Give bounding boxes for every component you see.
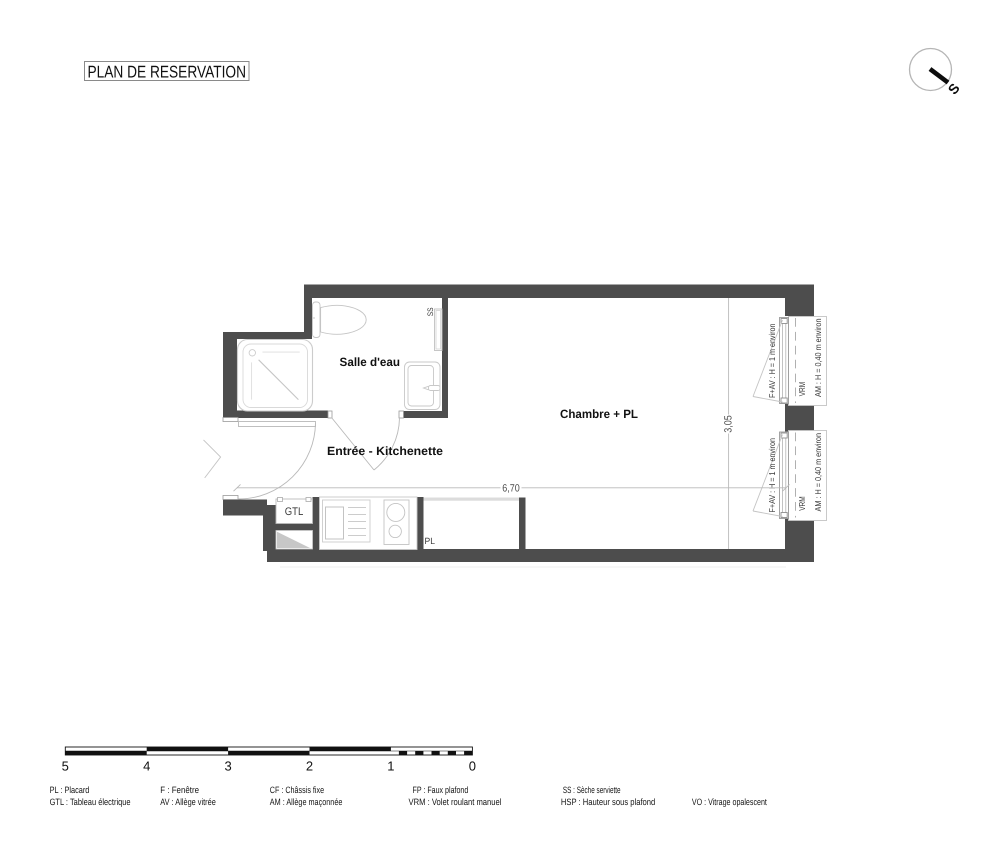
- svg-text:Chambre + PL: Chambre + PL: [560, 407, 638, 421]
- svg-text:VO : Vitrage opalescent: VO : Vitrage opalescent: [692, 797, 767, 807]
- svg-text:3: 3: [224, 759, 231, 774]
- svg-text:VRM : Volet roulant manuel: VRM : Volet roulant manuel: [409, 797, 502, 807]
- svg-text:4: 4: [143, 759, 150, 774]
- svg-text:2: 2: [306, 759, 313, 774]
- svg-text:AM : Allège maçonnée: AM : Allège maçonnée: [270, 797, 343, 807]
- svg-text:0: 0: [469, 759, 476, 774]
- svg-text:CF : Châssis fixe: CF : Châssis fixe: [270, 785, 324, 795]
- svg-text:6,70: 6,70: [502, 483, 520, 495]
- svg-text:GTL: GTL: [285, 506, 304, 518]
- svg-text:F : Fenêtre: F : Fenêtre: [160, 785, 199, 795]
- svg-text:Salle d'eau: Salle d'eau: [340, 355, 401, 369]
- svg-text:VRM: VRM: [797, 382, 807, 397]
- svg-text:3,05: 3,05: [723, 415, 735, 433]
- svg-text:1: 1: [387, 759, 394, 774]
- svg-text:GTL : Tableau électrique: GTL : Tableau électrique: [50, 797, 131, 807]
- svg-text:F+AV : H = 1 m environ: F+AV : H = 1 m environ: [767, 438, 777, 513]
- svg-text:AM : H = 0,40 m environ: AM : H = 0,40 m environ: [813, 318, 823, 397]
- svg-text:HSP : Hauteur sous plafond: HSP : Hauteur sous plafond: [561, 797, 655, 807]
- svg-text:SS: SS: [426, 308, 435, 317]
- svg-text:PL : Placard: PL : Placard: [50, 785, 90, 795]
- svg-text:5: 5: [62, 759, 69, 774]
- svg-text:Entrée - Kitchenette: Entrée - Kitchenette: [327, 444, 443, 458]
- svg-text:F+AV : H = 1 m environ: F+AV : H = 1 m environ: [767, 323, 777, 398]
- svg-text:AM : H = 0,40 m environ: AM : H = 0,40 m environ: [813, 433, 823, 512]
- svg-text:AV : Allège vitrée: AV : Allège vitrée: [160, 797, 216, 807]
- svg-text:VRM: VRM: [797, 496, 807, 511]
- svg-text:FP : Faux plafond: FP : Faux plafond: [413, 785, 469, 795]
- svg-text:PLAN DE RESERVATION: PLAN DE RESERVATION: [88, 62, 247, 81]
- svg-text:SS : Sèche serviette: SS : Sèche serviette: [563, 785, 621, 795]
- svg-text:PL: PL: [425, 536, 436, 546]
